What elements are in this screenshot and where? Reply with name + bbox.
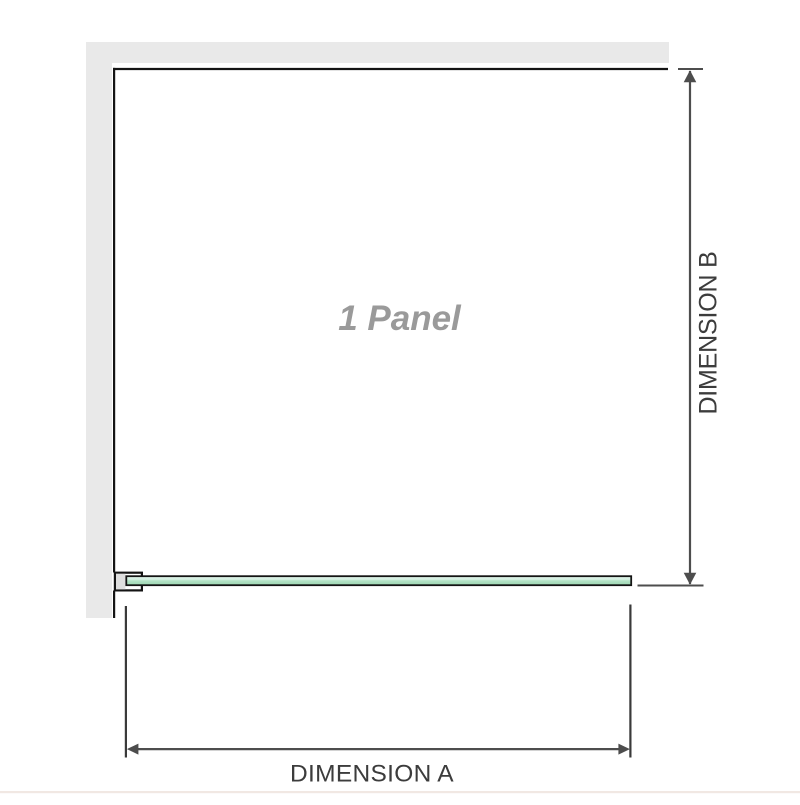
svg-text:1 Panel: 1 Panel (338, 299, 462, 338)
svg-text:DIMENSION B: DIMENSION B (695, 251, 723, 414)
svg-text:DIMENSION A: DIMENSION A (290, 760, 454, 787)
